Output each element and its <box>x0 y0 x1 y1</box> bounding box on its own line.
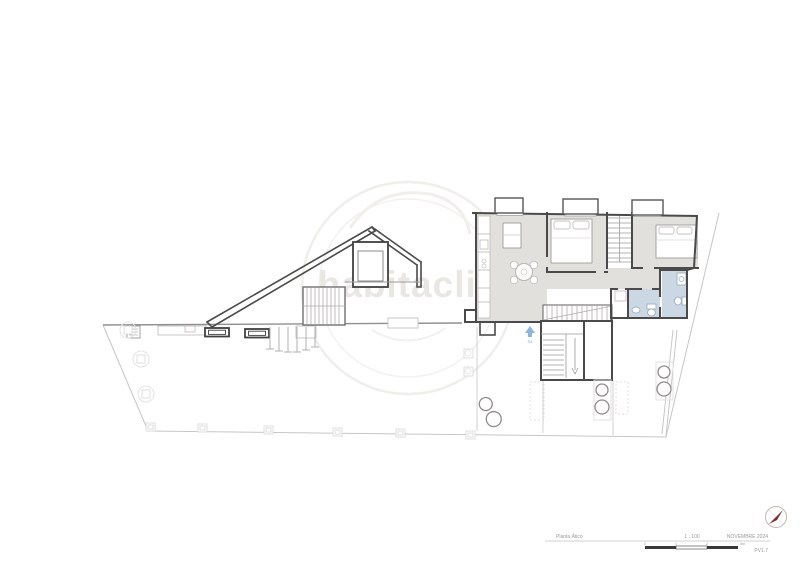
lounge-chair-icon <box>595 384 609 414</box>
toilet-icon <box>675 297 682 305</box>
lounge-chair-icon <box>657 366 671 396</box>
roof-structure <box>207 227 421 327</box>
secondary-stair <box>608 214 631 262</box>
scale-bar-label: 0 <box>644 542 646 546</box>
drawing-scale: 1 : 100 <box>684 534 700 540</box>
bed-icon-bedroom-2 <box>656 225 697 258</box>
elevator-shaft <box>584 321 612 380</box>
scale-bar: 0 1 2 5m <box>644 542 745 549</box>
sheet-number: PV1.7 <box>754 548 768 554</box>
edge-planter-icons <box>146 423 475 439</box>
title-block: Planta Ático 1 : 100 NOVEMBRE 2024 PV1.7… <box>545 533 770 554</box>
scale-bar-label: 5m <box>740 542 745 546</box>
scale-bar-label: 1 <box>675 542 677 546</box>
drawing-date: NOVEMBRE 2024 <box>727 534 768 540</box>
stairwell <box>541 321 584 380</box>
entrance-arrow-icon: S4 <box>525 326 535 344</box>
toilet-icon <box>648 309 656 316</box>
entrance-label: S4 <box>528 339 534 344</box>
planter-box-icon <box>245 329 269 338</box>
compass-icon <box>766 507 787 528</box>
sink-icon <box>632 307 640 313</box>
planter-box-icon <box>205 328 229 337</box>
dormer-bays <box>495 198 663 215</box>
drawing-name: Planta Ático <box>556 533 583 540</box>
floor-plan-drawing: habitaclia <box>0 0 800 566</box>
floor-plan-page: habitaclia <box>0 0 800 566</box>
kitchen-counter <box>478 216 490 318</box>
upper-stair-flight <box>543 305 612 321</box>
lounge-chair-icon <box>476 395 504 429</box>
bed-icon-bedroom-1 <box>551 219 592 263</box>
roof-stair <box>303 287 345 325</box>
sofa-icon <box>503 223 521 248</box>
scale-bar-label: 2 <box>706 542 708 546</box>
terrace-furniture <box>476 362 673 429</box>
